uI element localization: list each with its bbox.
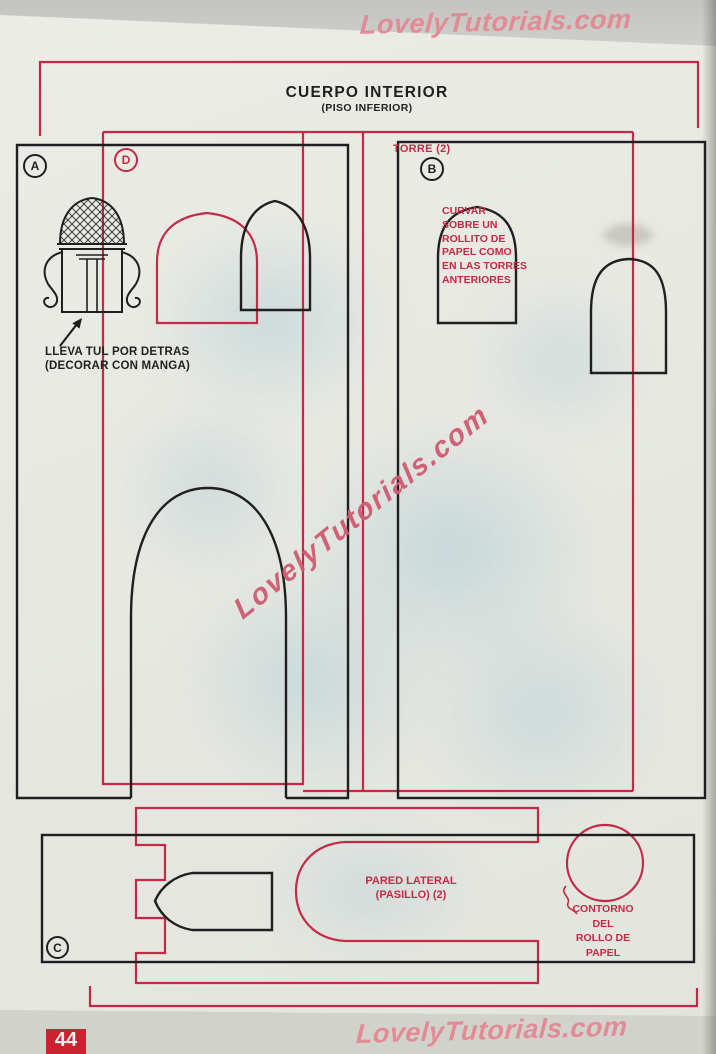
piece-d-label: D [114,148,138,172]
page-subtitle: (PISO INFERIOR) [227,102,507,114]
piece-b-label: B [420,157,444,181]
piece-c-name-line: PARED LATERAL [341,874,481,888]
note-line: SOBRE UN [442,219,527,233]
window-scroll-right [121,252,140,307]
piece-b-name: TORRE (2) [393,143,451,155]
piece-b-note: CURVAR SOBRE UN ROLLITO DE PAPEL COMO EN… [442,205,527,288]
scanned-pattern-page: A D B C CUERPO INTERIOR (PISO INFERIOR) … [0,0,716,1054]
paper-roll-contour-caption: CONTORNO DEL ROLLO DE PAPEL [548,902,658,960]
piece-c-name-line: (PASILLO) (2) [341,888,481,902]
piece-c-name: PARED LATERAL (PASILLO) (2) [341,874,481,902]
note-line: CURVAR [442,205,527,219]
page-title: CUERPO INTERIOR [227,84,507,102]
note-line: EN LAS TORRES [442,260,527,274]
piece-a-doorway-arch [131,488,286,798]
contour-caption-line: DEL [548,917,658,932]
annotation-line: LLEVA TUL POR DETRAS [45,345,190,359]
annotation-arrow [60,324,77,346]
contour-caption-line: PAPEL [548,946,658,961]
piece-c-label: C [46,936,69,959]
note-line: ROLLITO DE [442,233,527,247]
piece-c-bullet-shape [155,873,272,930]
piece-d-outline [103,132,633,784]
paper-roll-contour-circle [567,825,643,901]
note-line: ANTERIORES [442,274,527,288]
note-line: PAPEL COMO [442,246,527,260]
window-scroll-left [44,252,63,307]
annotation-line: (DECORAR CON MANGA) [45,359,190,373]
piece-d-black-arch [241,201,310,310]
piece-a-label: A [23,154,47,178]
bottom-bracket-line [90,986,697,1006]
piece-a-annotation: LLEVA TUL POR DETRAS (DECORAR CON MANGA) [45,345,190,373]
piece-b-arched-window-right [591,259,666,373]
page-number-badge: 44 [46,1029,86,1054]
window-dome [60,198,124,244]
contour-caption-line: ROLLO DE [548,931,658,946]
contour-caption-line: CONTORNO [548,902,658,917]
